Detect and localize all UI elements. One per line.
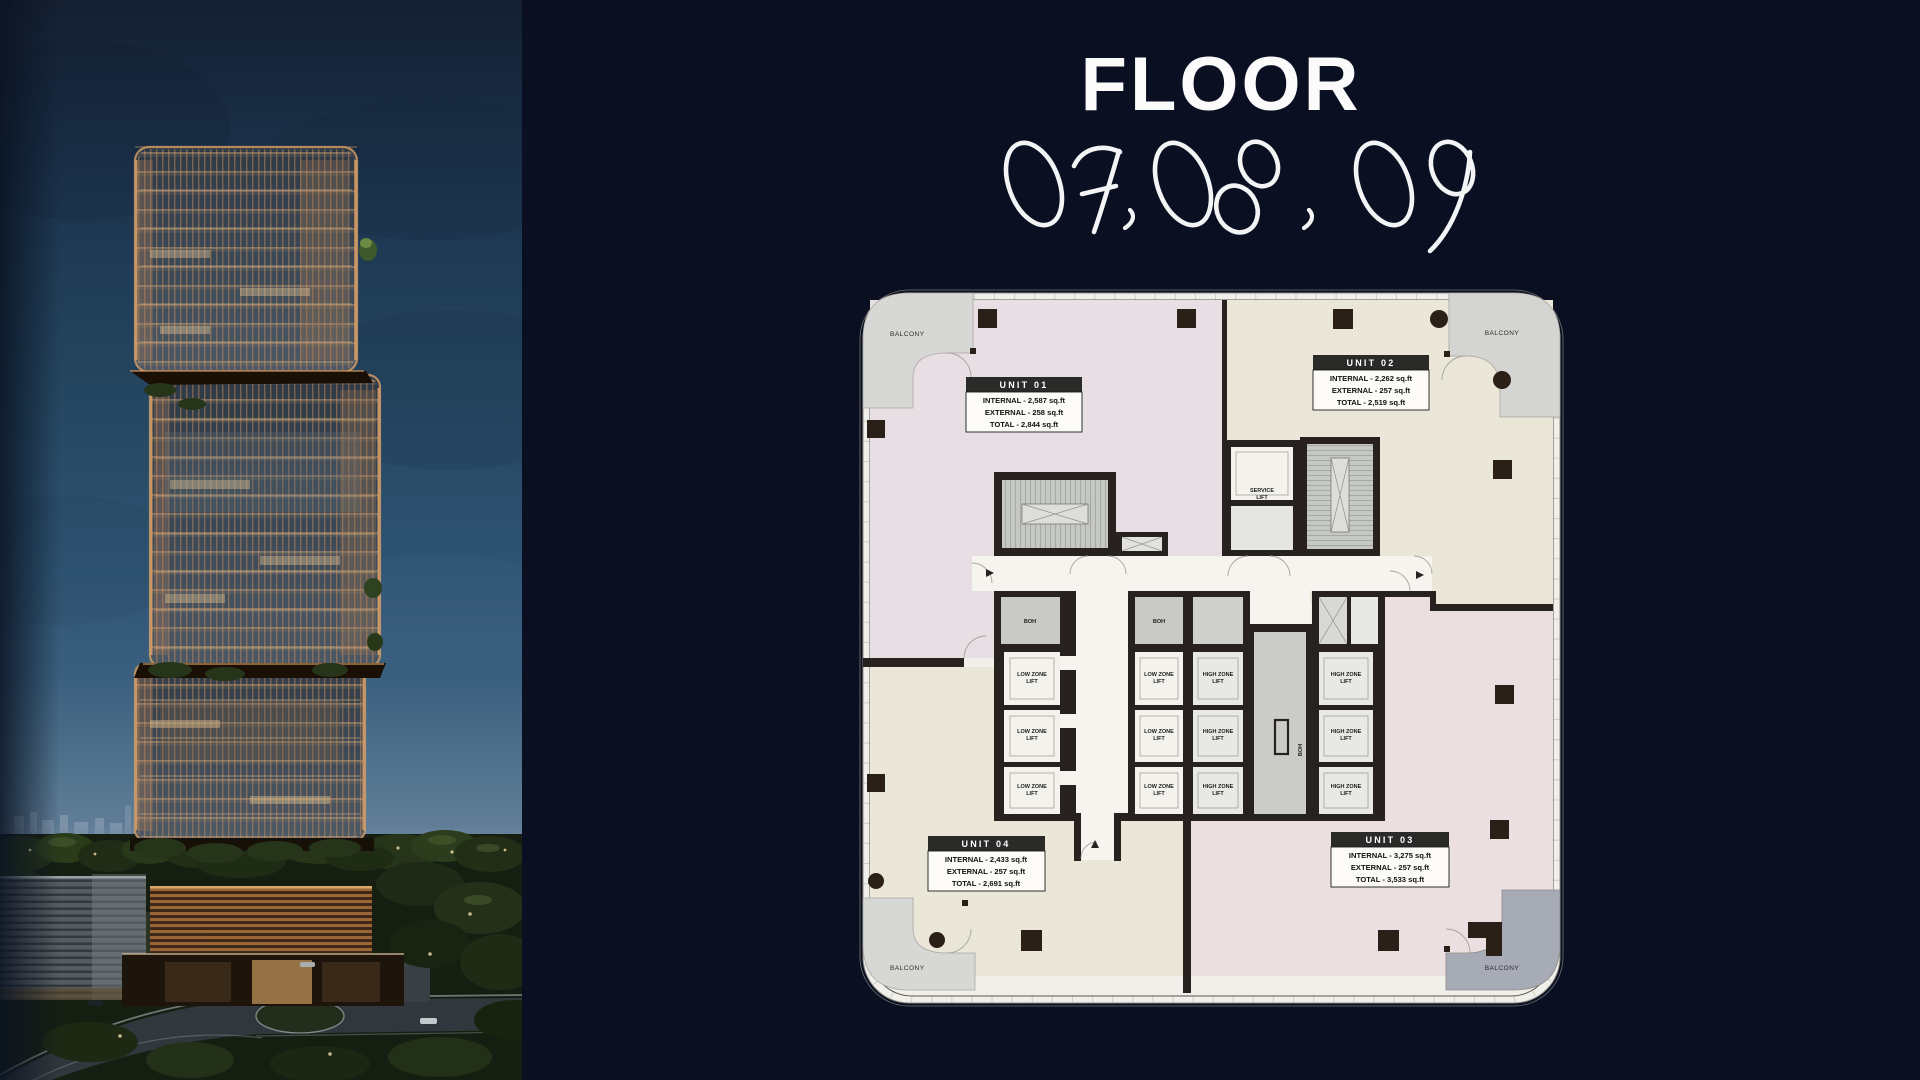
svg-text:LOW ZONE: LOW ZONE xyxy=(1144,784,1174,790)
svg-text:BOH: BOH xyxy=(1153,619,1165,625)
svg-text:UNIT 02: UNIT 02 xyxy=(1347,358,1396,368)
svg-text:LOW ZONE: LOW ZONE xyxy=(1017,729,1047,735)
svg-text:BALCONY: BALCONY xyxy=(890,965,925,972)
svg-text:BOH: BOH xyxy=(1298,744,1304,756)
svg-text:HIGH ZONE: HIGH ZONE xyxy=(1203,672,1234,678)
svg-text:TOTAL - 2,844 sq.ft: TOTAL - 2,844 sq.ft xyxy=(990,420,1059,429)
svg-text:LIFT: LIFT xyxy=(1340,791,1352,797)
svg-text:HIGH ZONE: HIGH ZONE xyxy=(1331,784,1362,790)
svg-text:BALCONY: BALCONY xyxy=(1485,965,1520,972)
svg-text:HIGH ZONE: HIGH ZONE xyxy=(1203,729,1234,735)
svg-text:HIGH ZONE: HIGH ZONE xyxy=(1203,784,1234,790)
svg-text:INTERNAL - 2,587 sq.ft: INTERNAL - 2,587 sq.ft xyxy=(983,396,1066,405)
svg-text:LIFT: LIFT xyxy=(1153,791,1165,797)
svg-text:LIFT: LIFT xyxy=(1153,736,1165,742)
svg-text:LIFT: LIFT xyxy=(1212,679,1224,685)
svg-text:LIFT: LIFT xyxy=(1026,679,1038,685)
svg-text:TOTAL - 2,519 sq.ft: TOTAL - 2,519 sq.ft xyxy=(1337,398,1406,407)
svg-text:LIFT: LIFT xyxy=(1153,679,1165,685)
svg-text:UNIT 01: UNIT 01 xyxy=(1000,380,1049,390)
svg-text:INTERNAL - 2,262 sq.ft: INTERNAL - 2,262 sq.ft xyxy=(1330,374,1413,383)
svg-text:HIGH ZONE: HIGH ZONE xyxy=(1331,672,1362,678)
svg-text:INTERNAL - 3,275 sq.ft: INTERNAL - 3,275 sq.ft xyxy=(1349,851,1432,860)
svg-text:EXTERNAL - 258 sq.ft: EXTERNAL - 258 sq.ft xyxy=(985,408,1064,417)
svg-text:EXTERNAL - 257 sq.ft: EXTERNAL - 257 sq.ft xyxy=(1332,386,1411,395)
svg-text:UNIT 04: UNIT 04 xyxy=(962,839,1011,849)
svg-text:INTERNAL - 2,433 sq.ft: INTERNAL - 2,433 sq.ft xyxy=(945,855,1028,864)
svg-text:TOTAL - 3,533 sq.ft: TOTAL - 3,533 sq.ft xyxy=(1356,875,1425,884)
svg-text:TOTAL - 2,691 sq.ft: TOTAL - 2,691 sq.ft xyxy=(952,879,1021,888)
svg-text:EXTERNAL - 257 sq.ft: EXTERNAL - 257 sq.ft xyxy=(947,867,1026,876)
svg-text:UNIT 03: UNIT 03 xyxy=(1366,835,1415,845)
svg-text:LIFT: LIFT xyxy=(1340,679,1352,685)
svg-text:HIGH ZONE: HIGH ZONE xyxy=(1331,729,1362,735)
svg-text:BOH: BOH xyxy=(1024,619,1036,625)
svg-text:LOW ZONE: LOW ZONE xyxy=(1144,672,1174,678)
svg-text:LIFT: LIFT xyxy=(1212,791,1224,797)
svg-text:LIFT: LIFT xyxy=(1212,736,1224,742)
svg-text:LIFT: LIFT xyxy=(1256,495,1268,501)
svg-text:LIFT: LIFT xyxy=(1026,736,1038,742)
svg-text:BALCONY: BALCONY xyxy=(890,331,925,338)
svg-text:BALCONY: BALCONY xyxy=(1485,330,1520,337)
svg-text:LOW ZONE: LOW ZONE xyxy=(1017,784,1047,790)
svg-text:LIFT: LIFT xyxy=(1026,791,1038,797)
svg-text:LOW ZONE: LOW ZONE xyxy=(1144,729,1174,735)
svg-text:LOW ZONE: LOW ZONE xyxy=(1017,672,1047,678)
svg-text:SERVICE: SERVICE xyxy=(1250,488,1274,494)
svg-text:LIFT: LIFT xyxy=(1340,736,1352,742)
svg-text:EXTERNAL - 257 sq.ft: EXTERNAL - 257 sq.ft xyxy=(1351,863,1430,872)
